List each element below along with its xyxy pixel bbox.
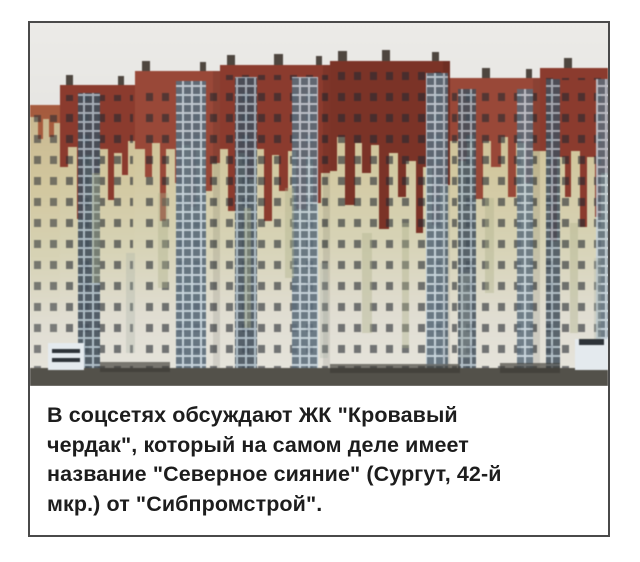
tower [220,54,330,373]
roof-vent [526,69,532,78]
meme-card: В соцсетях обсуждают ЖК "Кровавый чердак… [28,21,610,537]
apartment-towers [30,50,608,386]
roof-vent [382,50,390,61]
roof-vent [227,55,235,65]
roof-vent [66,75,73,85]
roof-vent [274,54,283,65]
roof-vent [338,51,347,61]
tower [30,105,60,373]
roof-vent [564,58,572,68]
glass-balcony-strip [176,81,206,373]
small-building [48,343,84,370]
caption: В соцсетях обсуждают ЖК "Кровавый чердак… [30,386,608,519]
roof-vent [142,61,150,71]
photo-scene [30,23,608,386]
roof-vent [200,62,206,71]
building-photo [30,23,608,386]
glass-balcony-strip [517,89,533,373]
caption-line: название "Северное сияние" (Сургут, 42-й [47,460,590,490]
roof-vent [432,52,439,61]
roof-vent [118,76,124,85]
roof-vent [316,56,322,65]
roof-vent [482,68,490,78]
glass-balcony-strip [546,79,560,371]
glass-balcony-strip [292,77,318,373]
caption-line: мкр.) от "Сибпромстрой". [47,490,590,520]
tower [135,61,220,373]
windows [31,115,59,371]
caption-line: В соцсетях обсуждают ЖК "Кровавый [47,401,590,431]
tower [330,50,450,373]
caption-line: чердак", который на самом деле имеет [47,431,590,461]
